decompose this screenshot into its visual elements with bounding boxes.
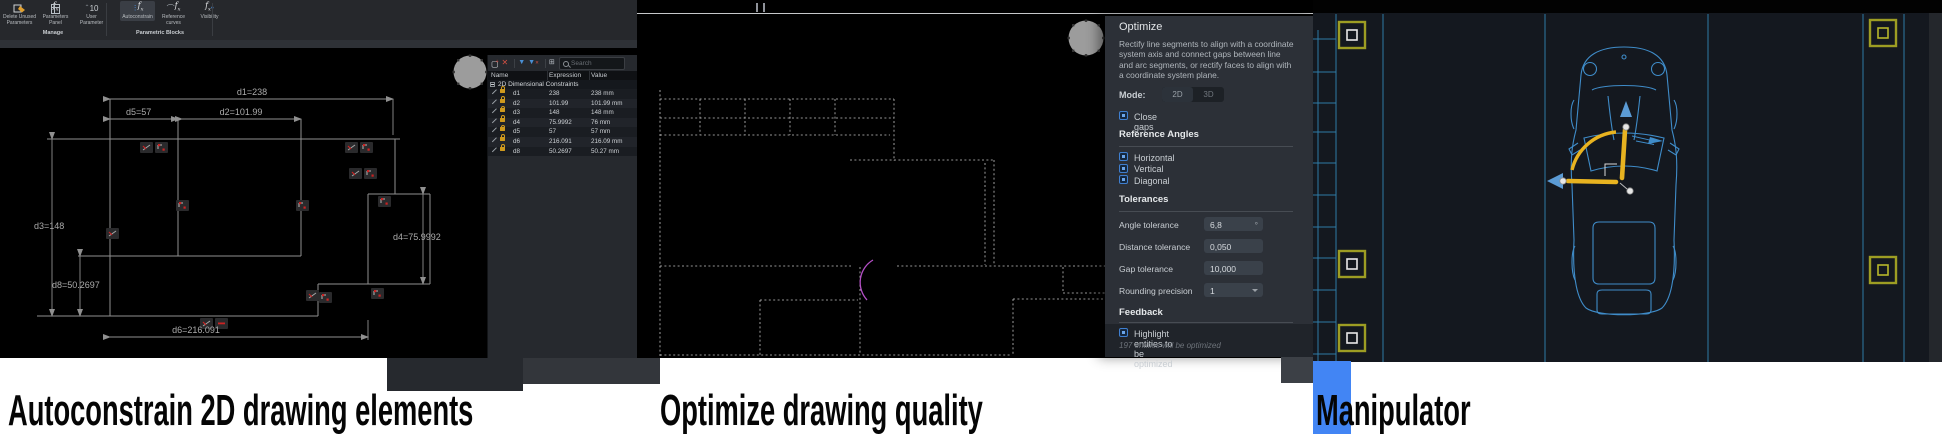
close-gaps-checkbox[interactable] (1119, 111, 1128, 120)
visibility-button[interactable]: fx● Visibility (192, 1, 227, 21)
toolbar-separator (514, 59, 515, 68)
lock-icon (500, 99, 505, 103)
search-icon (563, 61, 569, 67)
gap-tolerance-input[interactable]: 10,000 (1204, 261, 1263, 275)
lock-icon (500, 118, 505, 122)
parameters-panel: ▢+ ✕ ▼ ▼✕ ⊞ Name Expression Value 2D Dim… (487, 55, 638, 358)
plane-handle[interactable] (1605, 164, 1617, 176)
dim-label-d2[interactable]: d2=101.99 (206, 107, 276, 117)
lock-icon (500, 137, 505, 141)
edit-icon (492, 109, 497, 114)
chevron-down-icon (1252, 289, 1258, 292)
edit-icon (492, 147, 497, 152)
manipulator-screenshot (1313, 0, 1942, 362)
horizontal-checkbox[interactable] (1119, 152, 1128, 161)
caption-autoconstrain: Autoconstrain 2D drawing elements (8, 386, 473, 434)
dim-label-d5[interactable]: d5=57 (126, 107, 151, 117)
vertical-checkbox[interactable] (1119, 164, 1128, 173)
ribbon-separator (106, 3, 107, 36)
collapse-icon[interactable] (490, 82, 495, 87)
table-row[interactable]: d1 238 238 mm (488, 89, 638, 99)
new-parameter-icon[interactable]: ▢+ (491, 58, 498, 69)
search-input[interactable] (571, 60, 617, 67)
lock-icon (500, 147, 505, 151)
ribbon-separator (212, 3, 213, 36)
origin-link (1620, 183, 1627, 189)
lock-icon (500, 127, 505, 131)
angle-tolerance-input[interactable]: 6,8 ° (1204, 217, 1263, 231)
document-tab-strip (0, 40, 637, 48)
filter-icon[interactable]: ▼ (518, 59, 525, 67)
diagonal-checkbox[interactable] (1119, 175, 1128, 184)
caption-optimize: Optimize drawing quality (660, 386, 983, 434)
table-row[interactable]: d2 101.99 101.99 mm (488, 99, 638, 109)
lock-icon (500, 108, 505, 112)
top-strip (1313, 0, 1942, 13)
grip-dot[interactable] (1627, 188, 1633, 194)
ribbon-group-parametric-blocks: Parametric Blocks (108, 30, 212, 36)
mode-3d-button[interactable]: 3D (1193, 87, 1224, 102)
table-row[interactable]: d5 57 57 mm (488, 127, 638, 137)
table-row[interactable]: d8 50.2697 50.27 mm (488, 147, 638, 157)
reference-curves-button[interactable]: ⌒fx Reference curves (156, 1, 191, 26)
entities-count-note: 197 entities will be optimized (1119, 341, 1221, 350)
dim-label-d6[interactable]: d6=216.091 (161, 325, 231, 335)
optimize-panel: Optimize Rectify line segments to align … (1105, 16, 1313, 357)
rounding-precision-row: Rounding precision 1 (1119, 283, 1293, 298)
divider (1119, 146, 1293, 147)
door-swing-arc (860, 260, 873, 300)
distance-tolerance-input[interactable]: 0,050 (1204, 239, 1263, 253)
manipulator-canvas[interactable] (1313, 0, 1942, 362)
export-icon[interactable]: ⊞ (549, 59, 555, 67)
right-strip (1929, 13, 1942, 362)
lock-icon (500, 89, 505, 93)
grip-circle[interactable] (453, 55, 488, 90)
delete-parameter-icon[interactable]: ✕ (501, 59, 508, 67)
floor-plan (660, 90, 1105, 356)
table-header[interactable]: Name Expression Value (488, 71, 638, 80)
dim-label-d4[interactable]: d4=75.9992 (393, 232, 441, 242)
grip-circle[interactable] (1068, 20, 1105, 57)
tolerances-title: Tolerances (1119, 194, 1168, 205)
feedback-title: Feedback (1119, 307, 1163, 318)
clear-filter-icon[interactable]: ▼✕ (528, 59, 539, 67)
constraint-icons[interactable] (106, 142, 391, 329)
axis-x-handle[interactable] (1568, 181, 1616, 182)
ribbon-group-manage: Manage (0, 30, 106, 36)
mode-toggle[interactable]: 2D 3D (1162, 87, 1224, 102)
angle-tolerance-row: Angle tolerance 6,8 ° (1119, 217, 1293, 232)
column-value[interactable]: Value (591, 71, 607, 80)
composite-screenshot: d1=238 d5=57 d2=101.99 d3=148 d8=50.2697… (0, 0, 1942, 434)
axis-y-handle[interactable] (1622, 130, 1625, 178)
edit-icon (492, 89, 497, 94)
arrow-up-icon[interactable] (1620, 101, 1632, 117)
column-expression[interactable]: Expression (549, 71, 581, 80)
dim-label-d8[interactable]: d8=50.2697 (52, 280, 100, 290)
toolbar-separator (545, 59, 546, 68)
distance-tolerance-row: Distance tolerance 0,050 (1119, 239, 1293, 254)
parameters-panel-button[interactable]: fx Parameters Panel (38, 1, 73, 26)
block-reference-markers[interactable] (1339, 20, 1896, 351)
parameters-toolbar: ▢+ ✕ ▼ ▼✕ ⊞ (488, 55, 638, 71)
user-parameter-button[interactable]: ⌃10 User Parameter (74, 1, 109, 26)
autoconstrain-button[interactable]: ⋮fx Autoconstrain (120, 1, 155, 21)
reference-angles-title: Reference Angles (1119, 129, 1199, 140)
caption-manipulator: Manipulator (1316, 386, 1471, 434)
panel-shadow (523, 358, 660, 384)
table-row[interactable]: d6 216.091 216.09 mm (488, 137, 638, 147)
panel-shadow (1281, 357, 1313, 383)
dim-label-d3[interactable]: d3=148 (34, 221, 64, 231)
divider (1119, 322, 1293, 323)
search-box[interactable] (559, 57, 625, 70)
top-tick (763, 3, 765, 12)
manipulator-widget[interactable] (1547, 101, 1633, 194)
ribbon-bar: Delete Unused Parameters fx Parameters P… (0, 0, 637, 41)
grip-dot[interactable] (1623, 124, 1629, 130)
edit-icon (492, 118, 497, 123)
top-tick (756, 3, 758, 12)
dimension-lines (52, 99, 423, 340)
mode-2d-button[interactable]: 2D (1162, 87, 1193, 102)
gap-tolerance-row: Gap tolerance 10,000 (1119, 261, 1293, 276)
degree-suffix: ° (1255, 220, 1258, 230)
panel-description: Rectify line segments to align with a co… (1119, 39, 1295, 81)
dim-label-d1[interactable]: d1=238 (217, 87, 287, 97)
drawing-grid-lines (1313, 14, 1904, 362)
edit-icon (492, 99, 497, 104)
delete-unused-parameters-button[interactable]: Delete Unused Parameters (2, 1, 37, 26)
column-name[interactable]: Name (491, 71, 508, 80)
edit-icon (492, 137, 497, 142)
constraint-group-row[interactable]: 2D Dimensional Constraints (488, 80, 638, 89)
table-row[interactable]: d4 75.9992 76 mm (488, 118, 638, 128)
rounding-precision-dropdown[interactable]: 1 (1204, 283, 1263, 297)
grip-dot[interactable] (1560, 178, 1566, 184)
highlight-entities-checkbox[interactable] (1119, 328, 1128, 337)
panel-title: Optimize (1119, 21, 1162, 33)
edit-icon (492, 128, 497, 133)
divider (1119, 211, 1293, 212)
table-row[interactable]: d3 148 148 mm (488, 108, 638, 118)
app-top-edge (637, 13, 1313, 14)
